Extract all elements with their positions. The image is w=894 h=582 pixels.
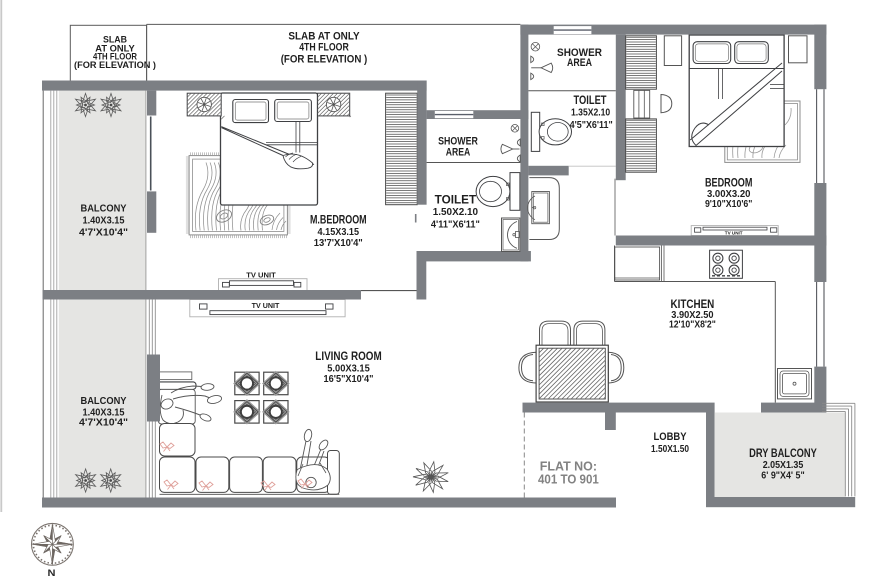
svg-text:TV UNIT: TV UNIT xyxy=(725,230,743,236)
svg-text:2.05X1.35: 2.05X1.35 xyxy=(763,460,804,471)
svg-text:1.35X2.10: 1.35X2.10 xyxy=(571,107,610,119)
svg-text:12'10"X8'2": 12'10"X8'2" xyxy=(669,320,716,331)
svg-text:TOILET: TOILET xyxy=(435,193,477,207)
svg-text:AREA: AREA xyxy=(567,57,592,69)
svg-text:LIVING ROOM: LIVING ROOM xyxy=(315,351,381,363)
svg-text:M.BEDROOM: M.BEDROOM xyxy=(310,214,367,226)
svg-text:TV UNIT: TV UNIT xyxy=(252,303,280,310)
svg-text:9'10"X10'6": 9'10"X10'6" xyxy=(705,199,753,210)
svg-text:1.40X3.15: 1.40X3.15 xyxy=(83,216,125,227)
svg-text:(FOR ELEVATION ): (FOR ELEVATION ) xyxy=(74,60,156,71)
svg-text:AREA: AREA xyxy=(446,147,471,159)
svg-text:BALCONY: BALCONY xyxy=(81,204,127,215)
svg-text:(FOR ELEVATION ): (FOR ELEVATION ) xyxy=(281,53,368,65)
svg-text:4TH FLOOR: 4TH FLOOR xyxy=(299,42,349,54)
svg-text:13'7'X10'4": 13'7'X10'4" xyxy=(314,238,363,249)
svg-text:4'7'X10'4": 4'7'X10'4" xyxy=(79,418,128,429)
svg-text:1.50X1.50: 1.50X1.50 xyxy=(651,444,689,455)
svg-text:6' 9"X4' 5": 6' 9"X4' 5" xyxy=(761,471,804,482)
svg-text:4'5"X6'11": 4'5"X6'11" xyxy=(570,119,613,131)
svg-text:SLAB AT ONLY: SLAB AT ONLY xyxy=(288,30,360,42)
svg-text:4'11"X6'11": 4'11"X6'11" xyxy=(431,219,480,231)
svg-text:401 TO 901: 401 TO 901 xyxy=(538,471,599,486)
svg-text:16'5"X10'4": 16'5"X10'4" xyxy=(324,374,374,385)
svg-text:1.50X2.10: 1.50X2.10 xyxy=(433,206,478,218)
svg-text:4.15X3.15: 4.15X3.15 xyxy=(318,227,360,238)
svg-text:N: N xyxy=(48,568,56,579)
svg-text:4'7'X10'4": 4'7'X10'4" xyxy=(79,228,128,239)
svg-text:TOILET: TOILET xyxy=(574,93,608,107)
svg-text:BEDROOM: BEDROOM xyxy=(705,178,753,190)
svg-text:BALCONY: BALCONY xyxy=(81,396,127,407)
svg-text:LOBBY: LOBBY xyxy=(654,431,688,443)
svg-text:DRY BALCONY: DRY BALCONY xyxy=(749,448,817,460)
